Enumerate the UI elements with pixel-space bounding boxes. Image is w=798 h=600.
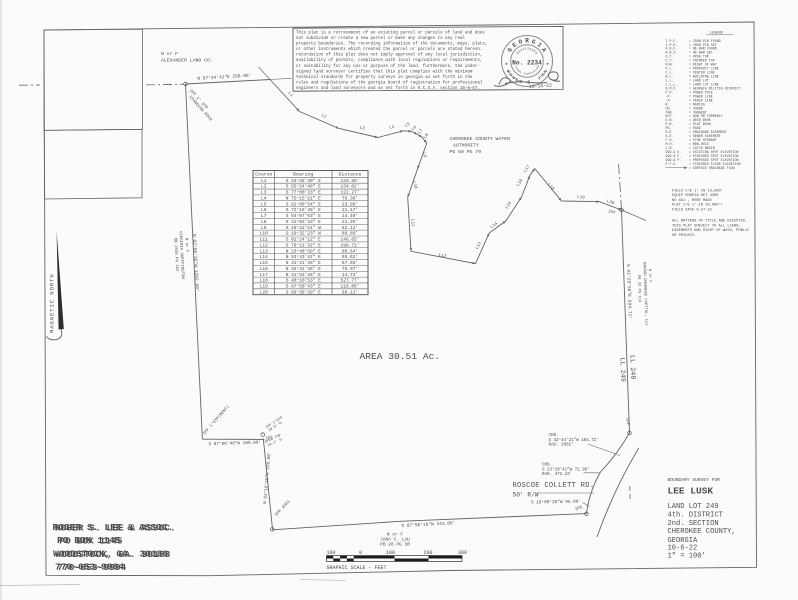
- svg-text:engineers and land surveyors a: engineers and land surveyors and as set …: [296, 86, 480, 91]
- svg-text:L11: L11: [260, 237, 268, 243]
- svg-text:23.96': 23.96': [342, 201, 358, 207]
- svg-text:L14: L14: [260, 254, 268, 260]
- svg-text:WOODSTOCK, GA. 30188: WOODSTOCK, GA. 30188: [53, 549, 168, 560]
- svg-text:L20: L20: [260, 289, 268, 295]
- svg-text:L2: L2: [261, 184, 267, 190]
- svg-text:L6: L6: [261, 207, 267, 213]
- svg-text:signed land surveyor certifies: signed land surveyor certifies that this…: [296, 69, 473, 74]
- svg-text:L3: L3: [261, 190, 267, 196]
- svg-text:CHD.: CHD.: [542, 464, 552, 468]
- svg-text:L16: L16: [260, 266, 268, 272]
- svg-text:not subdivide or create a new: not subdivide or create a new parcel or …: [296, 36, 465, 41]
- svg-text:S 72°10'46" E: S 72°10'46" E: [286, 207, 321, 213]
- svg-text:LAND LOT 249: LAND LOT 249: [668, 503, 719, 511]
- svg-text:14.73': 14.73': [342, 272, 358, 278]
- svg-text:FIELD DATE 9-27-22: FIELD DATE 9-27-22: [672, 208, 712, 212]
- svg-text:technical standards for proper: technical standards for property surveys…: [296, 75, 473, 80]
- svg-text:or suitability for any use or: or suitability for any use or purpose of…: [296, 64, 480, 69]
- svg-text:L11: L11: [410, 219, 416, 227]
- svg-text:THIS PLAT SUBJECT TO ALL LIENS: THIS PLAT SUBJECT TO ALL LIENS,: [672, 224, 741, 228]
- svg-text:ALEXANDER LAND CO.: ALEXANDER LAND CO.: [161, 58, 213, 64]
- svg-text:0: 0: [359, 550, 362, 556]
- svg-text:89.89': 89.89': [342, 231, 358, 237]
- svg-text:L17: L17: [260, 272, 268, 278]
- svg-text:146.65': 146.65': [341, 237, 360, 243]
- svg-text:S 19°08'20"W 95.99': S 19°08'20"W 95.99': [531, 500, 581, 506]
- svg-text:200: 200: [423, 550, 432, 556]
- svg-text:14.49': 14.49': [342, 213, 358, 219]
- svg-text:CHEROKEE COUNTY,: CHEROKEE COUNTY,: [668, 528, 736, 536]
- svg-text:PLAT C/E 1' IN 20,000'+: PLAT C/E 1' IN 20,000'+: [672, 203, 723, 208]
- svg-text:CHD.: CHD.: [549, 434, 559, 438]
- svg-text:770-653-9984: 770-653-9984: [55, 562, 124, 573]
- svg-text:300: 300: [458, 550, 467, 556]
- svg-text:50' R/W: 50' R/W: [513, 492, 539, 499]
- svg-text:N 75°15'21" E: N 75°15'21" E: [286, 195, 321, 201]
- svg-text:rules and regulations of the g: rules and regulations of the georgia boa…: [296, 80, 483, 85]
- svg-text:68.11': 68.11': [342, 289, 358, 295]
- svg-text:76.36': 76.36': [342, 195, 358, 201]
- svg-text:S 79°21'32" E: S 79°21'32" E: [286, 242, 321, 248]
- svg-text:100: 100: [326, 550, 335, 556]
- svg-text:S 69°36'39" E: S 69°36'39" E: [286, 289, 321, 295]
- svg-text:This plat is a retracement of: This plat is a retracement of an existin…: [296, 30, 485, 35]
- svg-text:76.97': 76.97': [342, 266, 358, 272]
- svg-text:NO ADJ., HERE MADE: NO ADJ., HERE MADE: [672, 199, 713, 203]
- svg-text:L19: L19: [260, 284, 268, 290]
- svg-text:EASEMENTS AND RIGHT OF WAYS, P: EASEMENTS AND RIGHT OF WAYS, PUBLIC: [672, 229, 750, 233]
- svg-text:availability of permits, compl: availability of permits, compliance with…: [296, 58, 482, 63]
- svg-text:PB 28 PG 30: PB 28 PG 30: [380, 541, 410, 547]
- svg-text:128.56': 128.56': [341, 178, 360, 184]
- svg-text:L7: L7: [261, 213, 267, 219]
- svg-text:LL 249: LL 249: [618, 357, 627, 382]
- svg-text:L13: L13: [260, 248, 268, 254]
- svg-text:RAD. 2002': RAD. 2002': [549, 443, 574, 448]
- svg-text:OR PRIVATE.: OR PRIVATE.: [672, 234, 696, 238]
- svg-text:N or F: N or F: [161, 51, 178, 57]
- svg-text:Bearing: Bearing: [293, 172, 313, 178]
- svg-text:L9: L9: [261, 225, 267, 231]
- svg-text:L1: L1: [261, 178, 267, 184]
- svg-text:EQUIP SOKKIA SET 4300: EQUIP SOKKIA SET 4300: [672, 194, 718, 198]
- svg-text:MAGNETIC NORTH: MAGNETIC NORTH: [49, 273, 56, 333]
- svg-text:N 23°40'58" E: N 23°40'58" E: [286, 248, 321, 254]
- svg-text:S 19°22'51" W: S 19°22'51" W: [286, 225, 321, 231]
- svg-text:21.35': 21.35': [342, 219, 358, 225]
- svg-text:ALL MATTERS OF TITLE ARE EXCEP: ALL MATTERS OF TITLE ARE EXCEPTED.: [672, 220, 747, 224]
- svg-text:GRAPHIC SCALE - FEET: GRAPHIC SCALE - FEET: [327, 565, 387, 571]
- svg-text:4th. DISTRICT: 4th. DISTRICT: [668, 511, 723, 519]
- svg-text:F.F.E.: F.F.E.: [666, 162, 678, 166]
- svg-text:★: ★: [546, 61, 549, 67]
- svg-text:AREA 30.51 Ac.: AREA 30.51 Ac.: [360, 351, 441, 362]
- svg-text:PG 59 PG 79: PG 59 PG 79: [450, 149, 482, 155]
- svg-text:99.64': 99.64': [342, 248, 358, 254]
- svg-text:FIELD C/E 1' IN 10,000': FIELD C/E 1' IN 10,000': [672, 189, 723, 194]
- svg-text:198.71': 198.71': [341, 242, 360, 248]
- svg-text:2nd. SECTION: 2nd. SECTION: [668, 520, 719, 528]
- svg-text:21.17': 21.17': [342, 207, 358, 213]
- svg-text:10-6-22: 10-6-22: [668, 545, 698, 553]
- svg-text:S 87°50'43" E: S 87°50'43" E: [286, 284, 321, 290]
- svg-text:LEE LUSK: LEE LUSK: [668, 486, 714, 497]
- svg-text:property boundaries. The recor: property boundaries. The recording infor…: [296, 42, 487, 47]
- svg-text:ROSCOE COLLETT RD.: ROSCOE COLLETT RD.: [513, 482, 595, 490]
- svg-text:R: R: [525, 37, 529, 44]
- svg-text:N or F: N or F: [647, 269, 652, 284]
- svg-text:ROGER S. LEE & ASSOC.: ROGER S. LEE & ASSOC.: [53, 522, 174, 533]
- svg-text:S 40°10'53" E: S 40°10'53" E: [286, 278, 321, 284]
- svg-text:N 31°53'46" E: N 31°53'46" E: [286, 272, 321, 278]
- svg-text:S 31°03'33" E: S 31°03'33" E: [286, 219, 321, 225]
- svg-text:S 65°24'40" E: S 65°24'40" E: [286, 184, 321, 190]
- svg-text:Distance: Distance: [338, 172, 361, 178]
- svg-text:★: ★: [505, 61, 508, 67]
- svg-text:RAD. 472.43': RAD. 472.43': [542, 472, 572, 477]
- svg-text:65.62': 65.62': [342, 254, 358, 260]
- svg-text:122.27': 122.27': [341, 190, 360, 196]
- svg-text:L15: L15: [260, 260, 268, 266]
- svg-text:AUTHORITY: AUTHORITY: [453, 143, 479, 149]
- svg-text:S 77°00'33" E: S 77°00'33" E: [286, 190, 321, 196]
- svg-text:S 19°32'23" W: S 19°32'23" W: [286, 231, 321, 237]
- svg-text:LL 248: LL 248: [628, 355, 637, 380]
- svg-text:82.11': 82.11': [342, 225, 358, 231]
- svg-text:S 02°24'12" E: S 02°24'12" E: [286, 237, 321, 243]
- svg-text:S 42°44'21"W 104.72': S 42°44'21"W 104.72': [549, 438, 599, 443]
- svg-text:527.77': 527.77': [341, 278, 360, 284]
- svg-text:N 31°21'45" E: N 31°21'45" E: [286, 260, 321, 266]
- svg-text:L4: L4: [261, 195, 267, 201]
- svg-text:100: 100: [386, 550, 395, 556]
- svg-text:CHEROKEE COUNTY WATER: CHEROKEE COUNTY WATER: [450, 136, 511, 142]
- svg-text:134.02': 134.02': [341, 184, 360, 190]
- svg-text:L12: L12: [260, 242, 268, 248]
- svg-text:L5: L5: [261, 201, 267, 207]
- svg-text:Course: Course: [255, 172, 272, 178]
- svg-text:L8: L8: [261, 219, 267, 225]
- svg-text:PO BOX 1145: PO BOX 1145: [57, 535, 121, 546]
- svg-text:S 82°00'54" E: S 82°00'54" E: [286, 201, 321, 207]
- svg-text:L18: L18: [260, 278, 268, 284]
- svg-text:N 25°31'36" E: N 25°31'36" E: [286, 266, 321, 272]
- svg-text:= SURFACE DRAINAGE FLOW: = SURFACE DRAINAGE FLOW: [689, 166, 735, 170]
- svg-text:S 43°26'30" E: S 43°26'30" E: [286, 178, 321, 184]
- svg-text:1" = 100': 1" = 100': [668, 553, 706, 561]
- svg-text:recordation of this plat does: recordation of this plat does not imply …: [296, 53, 482, 58]
- svg-text:116.06': 116.06': [341, 284, 360, 290]
- svg-text:S 54°07'03" E: S 54°07'03" E: [286, 213, 321, 219]
- svg-text:S 23°10'41"W 72.96': S 23°10'41"W 72.96': [542, 467, 590, 472]
- svg-text:or other instruments which cre: or other instruments which created the p…: [296, 47, 482, 52]
- svg-text:BOUNDARY SURVEY FOR: BOUNDARY SURVEY FOR: [668, 477, 721, 483]
- svg-text:N 53°43'42" E: N 53°43'42" E: [286, 254, 321, 260]
- svg-text:N or F: N or F: [184, 238, 190, 253]
- svg-text:67.65': 67.65': [342, 260, 358, 266]
- svg-text:L10: L10: [260, 231, 268, 237]
- svg-text:L19: L19: [577, 195, 585, 201]
